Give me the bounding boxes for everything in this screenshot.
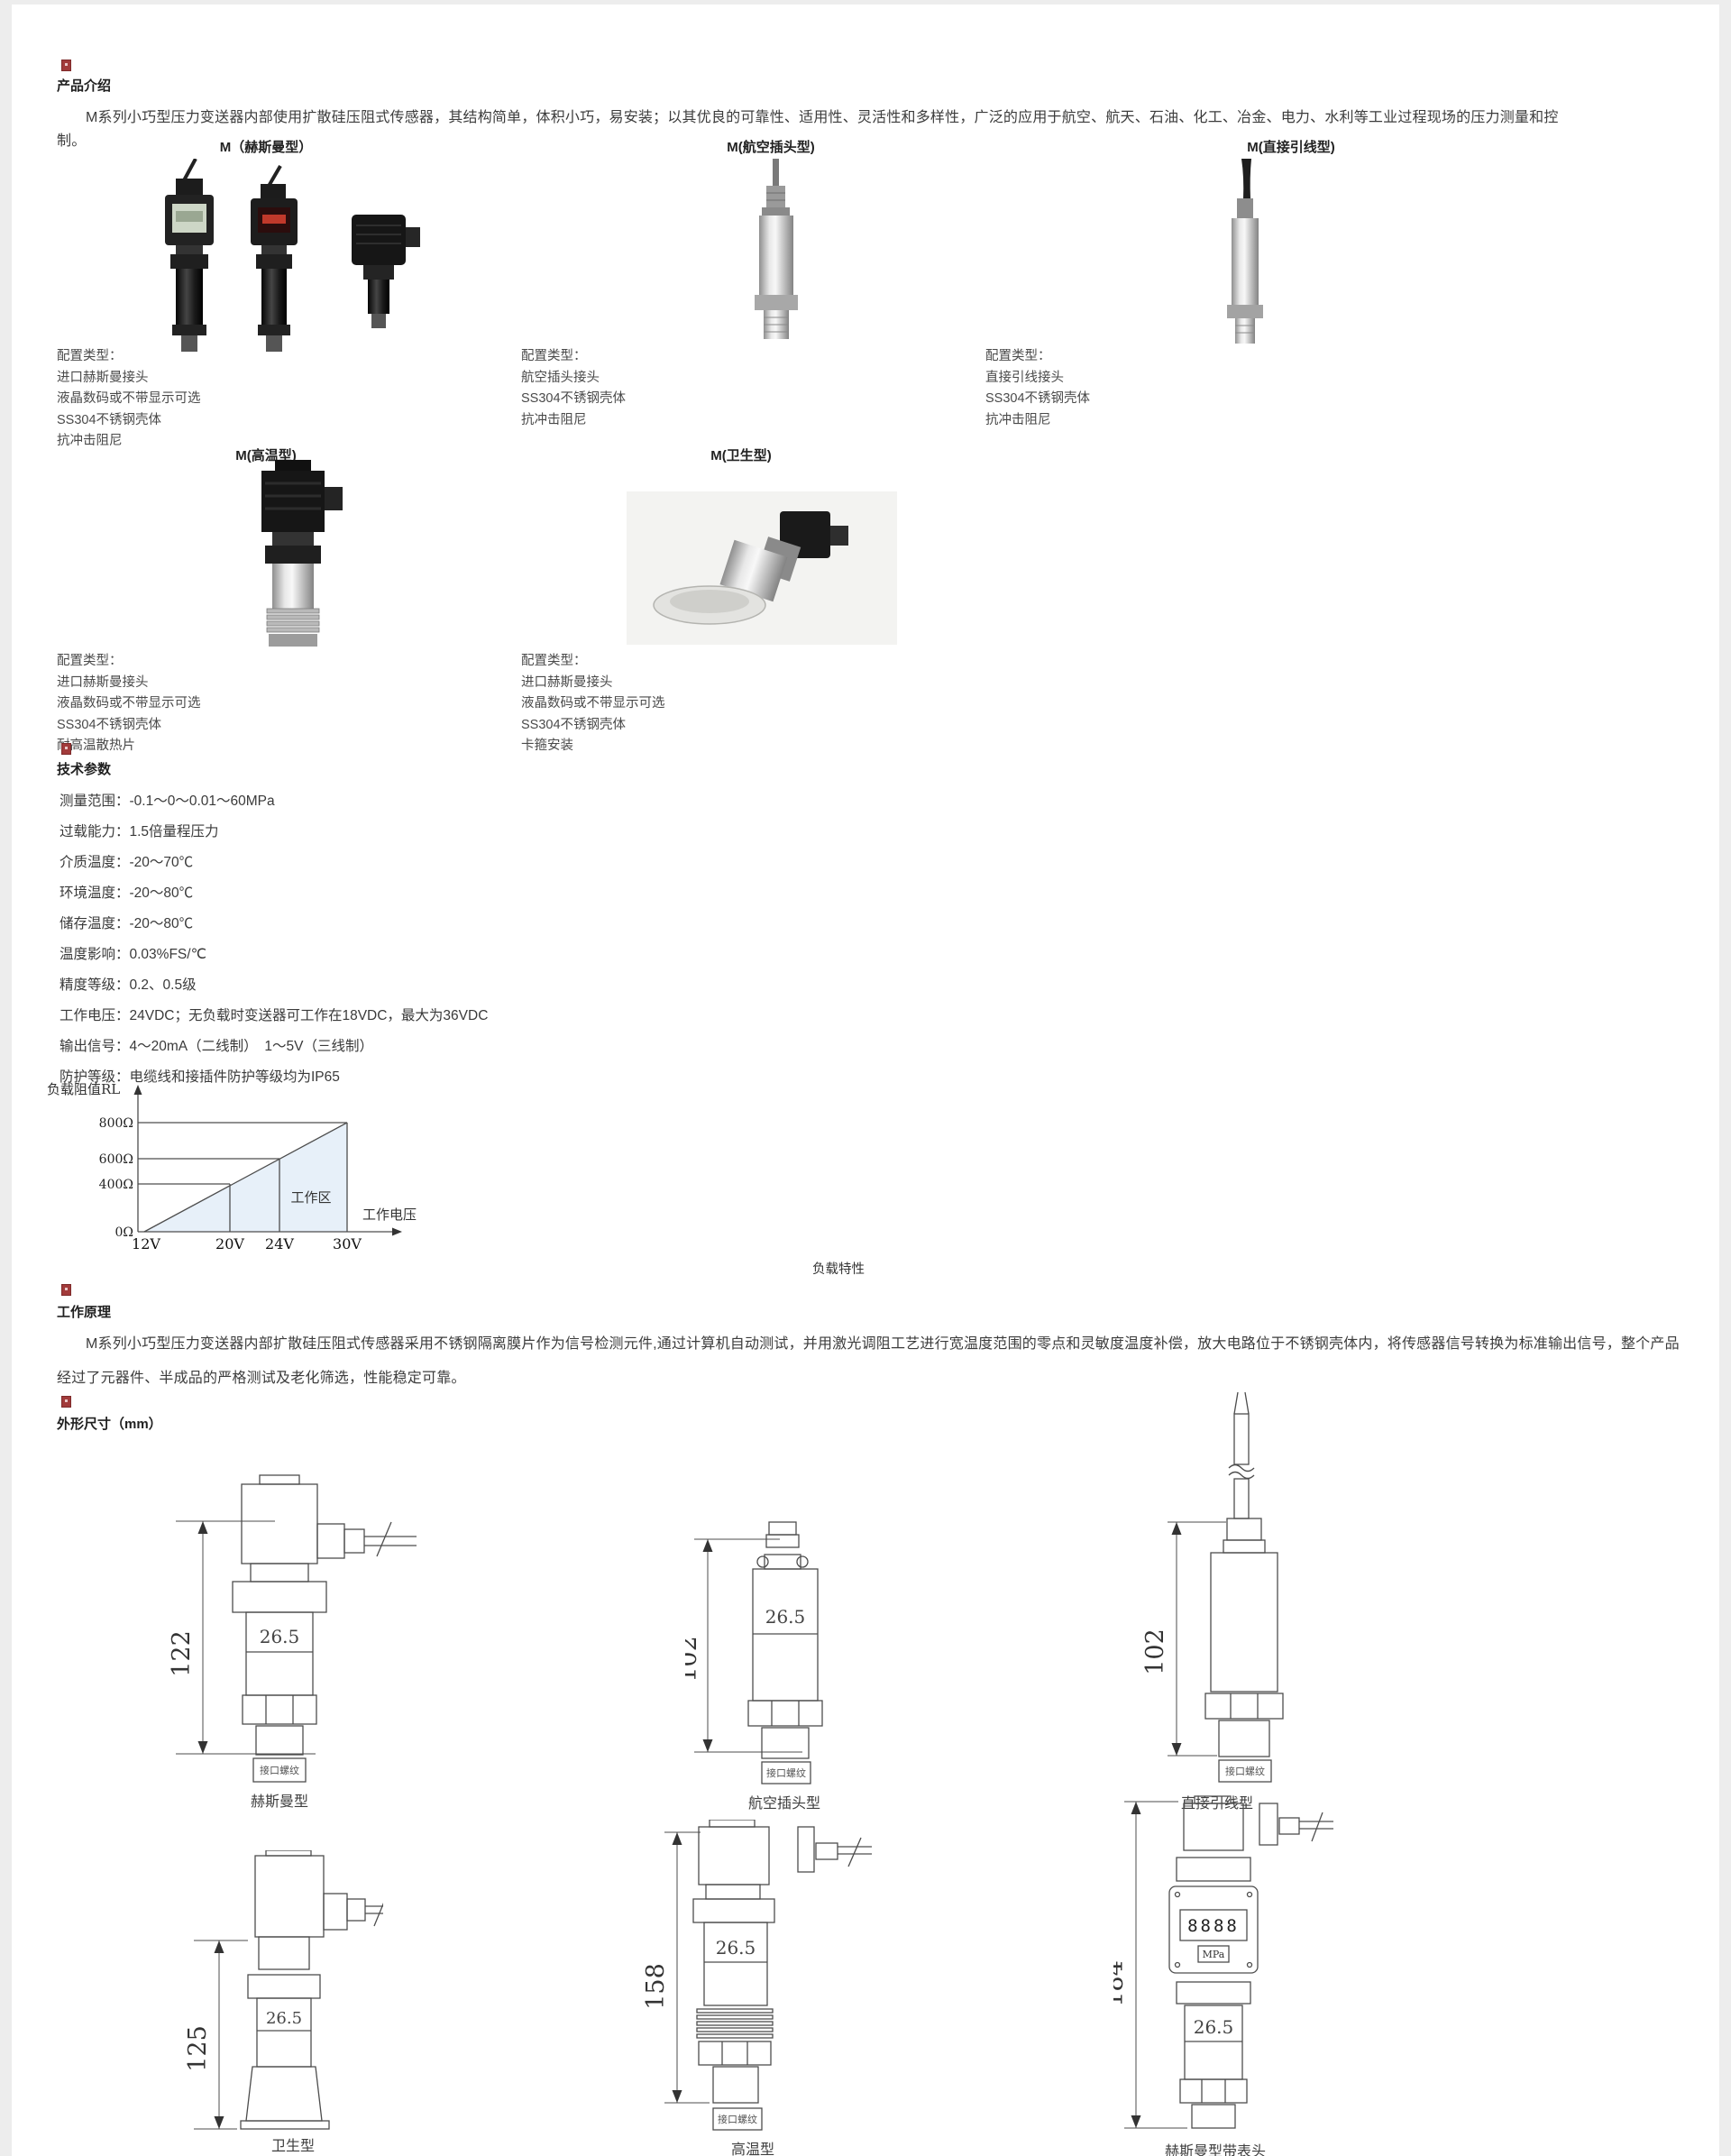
chart-region-label: 工作区	[290, 1189, 331, 1206]
x-tick-24v: 24V	[265, 1235, 294, 1252]
config-list-hirschmann: 配置类型： 进口赫斯曼接头 液晶数码或不带显示可选 SS304不锈钢壳体 抗冲击…	[57, 346, 201, 453]
y-tick-600: 600Ω	[99, 1152, 133, 1167]
param-media-temp: 介质温度：-20～70℃	[60, 848, 488, 878]
config-label: 配置类型：	[57, 346, 201, 368]
dimension-drawing-direct-lead: 102 接口螺纹	[1140, 1390, 1348, 1789]
chart-y-axis-label: 负载阻值RL	[47, 1081, 120, 1097]
config-label: 配置类型：	[57, 651, 201, 673]
config-item: 进口赫斯曼接头	[521, 673, 665, 694]
product-photo-direct-lead	[1213, 159, 1279, 352]
chart-caption: 负载特性	[0, 1259, 1677, 1278]
variant-title-sanitary: M(卫生型)	[633, 445, 849, 464]
product-photo-aviation-plug	[739, 159, 815, 352]
dim-body-width: 26.5	[765, 1606, 806, 1628]
drawing-caption-high-temp: 高温型	[681, 2137, 825, 2156]
intro-heading: 产品介绍	[57, 76, 111, 95]
variant-title-aviation: M(航空插头型)	[663, 137, 879, 156]
dim-height: 102	[685, 1636, 702, 1683]
tech-heading: 技术参数	[57, 759, 111, 778]
product-photo-sanitary	[627, 491, 897, 645]
config-item: 直接引线接头	[985, 368, 1090, 390]
config-label: 配置类型：	[521, 346, 626, 368]
param-range: 测量范围：-0.1～0～0.01～60MPa	[60, 786, 488, 817]
config-item: 进口赫斯曼接头	[57, 368, 201, 390]
section-marker-icon	[61, 743, 71, 755]
thread-label: 接口螺纹	[766, 1766, 806, 1779]
param-voltage: 工作电压：24VDC；无负载时变送器可工作在18VDC，最大为36VDC	[60, 1001, 488, 1032]
section-marker-icon	[61, 1396, 71, 1408]
param-accuracy: 精度等级：0.2、0.5级	[60, 970, 488, 1001]
config-list-directlead: 配置类型： 直接引线接头 SS304不锈钢壳体 抗冲击阻尼	[985, 346, 1090, 431]
config-list-hightemp: 配置类型： 进口赫斯曼接头 液晶数码或不带显示可选 SS304不锈钢壳体 耐高温…	[57, 651, 201, 757]
config-item: SS304不锈钢壳体	[985, 389, 1090, 410]
config-item: SS304不锈钢壳体	[521, 715, 665, 737]
dimension-drawing-hirschmann: 122 26.5 接口螺纹	[126, 1468, 451, 1789]
dimension-drawing-hirschmann-display: 184 8888 MPa 26.5	[1113, 1793, 1384, 2151]
config-list-sanitary: 配置类型： 进口赫斯曼接头 液晶数码或不带显示可选 SS304不锈钢壳体 卡箍安…	[521, 651, 665, 757]
y-tick-400: 400Ω	[99, 1178, 133, 1192]
drawing-caption-hirschmann-display: 赫斯曼型带表头	[1134, 2139, 1296, 2156]
dim-body-width: 26.5	[266, 2009, 302, 2028]
tech-params-list: 测量范围：-0.1～0～0.01～60MPa 过载能力：1.5倍量程压力 介质温…	[60, 786, 488, 1093]
param-ambient-temp: 环境温度：-20～80℃	[60, 878, 488, 909]
thread-label: 接口螺纹	[1225, 1765, 1265, 1777]
config-item: 卡箍安装	[521, 736, 665, 757]
config-item: 抗冲击阻尼	[985, 410, 1090, 432]
config-item: SS304不锈钢壳体	[57, 410, 201, 432]
dim-height: 184	[1113, 1960, 1129, 2007]
product-datasheet-page: 产品介绍 M系列小巧型压力变送器内部使用扩散硅压阻式传感器，其结构简单，体积小巧…	[0, 0, 1731, 2156]
dim-height: 158	[645, 1963, 670, 2010]
dim-height: 125	[184, 2025, 212, 2072]
config-item: 耐高温散热片	[57, 736, 201, 757]
page-edge-left	[0, 0, 12, 2156]
config-list-aviation: 配置类型： 航空插头接头 SS304不锈钢壳体 抗冲击阻尼	[521, 346, 626, 431]
thread-label: 接口螺纹	[260, 1764, 299, 1776]
thread-label: 接口螺纹	[718, 2113, 757, 2125]
y-tick-0: 0Ω	[114, 1225, 133, 1240]
param-output: 输出信号：4～20mA（二线制） 1～5V（三线制）	[60, 1032, 488, 1062]
dimension-drawing-sanitary: 125 26.5	[158, 1850, 383, 2137]
variant-title-directlead: M(直接引线型)	[1183, 137, 1399, 156]
dims-heading: 外形尺寸（mm）	[57, 1414, 162, 1433]
chart-x-axis-label: 工作电压	[362, 1206, 417, 1223]
drawing-caption-hirschmann: 赫斯曼型	[207, 1789, 352, 1811]
config-item: SS304不锈钢壳体	[57, 715, 201, 737]
dim-height: 102	[1141, 1628, 1169, 1675]
variant-title-hirschmann: M（赫斯曼型）	[158, 137, 374, 156]
config-label: 配置类型：	[985, 346, 1090, 368]
principle-heading: 工作原理	[57, 1302, 111, 1321]
page-edge-top	[0, 0, 1731, 5]
config-item: 液晶数码或不带显示可选	[57, 693, 201, 715]
display-unit-label: MPa	[1203, 1949, 1225, 1960]
config-item: SS304不锈钢壳体	[521, 389, 626, 410]
load-characteristic-chart: 负载阻值RL 800Ω 600Ω 400Ω 0Ω 12V 20V 24V 30V…	[36, 1078, 478, 1258]
drawing-caption-sanitary: 卫生型	[216, 2133, 370, 2155]
x-tick-30v: 30V	[333, 1235, 362, 1252]
config-label: 配置类型：	[521, 651, 665, 673]
param-overload: 过载能力：1.5倍量程压力	[60, 817, 488, 848]
config-item: 航空插头接头	[521, 368, 626, 390]
dimension-drawing-aviation: 102 26.5 接口螺纹	[685, 1513, 902, 1789]
section-marker-icon	[61, 60, 71, 71]
x-tick-20v: 20V	[215, 1235, 244, 1252]
config-item: 液晶数码或不带显示可选	[57, 389, 201, 410]
display-digits: 8888	[1187, 1916, 1240, 1936]
config-item: 抗冲击阻尼	[521, 410, 626, 432]
dim-height: 122	[168, 1630, 196, 1677]
x-tick-12v: 12V	[132, 1235, 160, 1252]
y-tick-800: 800Ω	[99, 1116, 133, 1131]
principle-paragraph: M系列小巧型压力变送器内部扩散硅压阻式传感器采用不锈钢隔离膜片作为信号检测元件,…	[57, 1327, 1680, 1396]
product-photo-hirschmann-types	[149, 159, 446, 353]
drawing-caption-aviation: 航空插头型	[712, 1791, 856, 1812]
config-item: 液晶数码或不带显示可选	[521, 693, 665, 715]
dim-body-width: 26.5	[716, 1937, 756, 1959]
product-photo-high-temp	[225, 460, 361, 651]
config-item: 进口赫斯曼接头	[57, 673, 201, 694]
dim-body-width: 26.5	[1194, 2016, 1234, 2038]
page-edge-right	[1719, 0, 1731, 2156]
param-storage-temp: 储存温度：-20～80℃	[60, 909, 488, 940]
dim-body-width: 26.5	[260, 1626, 300, 1647]
dimension-drawing-high-temp: 158 26.5 接口螺纹	[645, 1820, 906, 2135]
param-temp-effect: 温度影响：0.03%FS/℃	[60, 940, 488, 970]
section-marker-icon	[61, 1284, 71, 1296]
